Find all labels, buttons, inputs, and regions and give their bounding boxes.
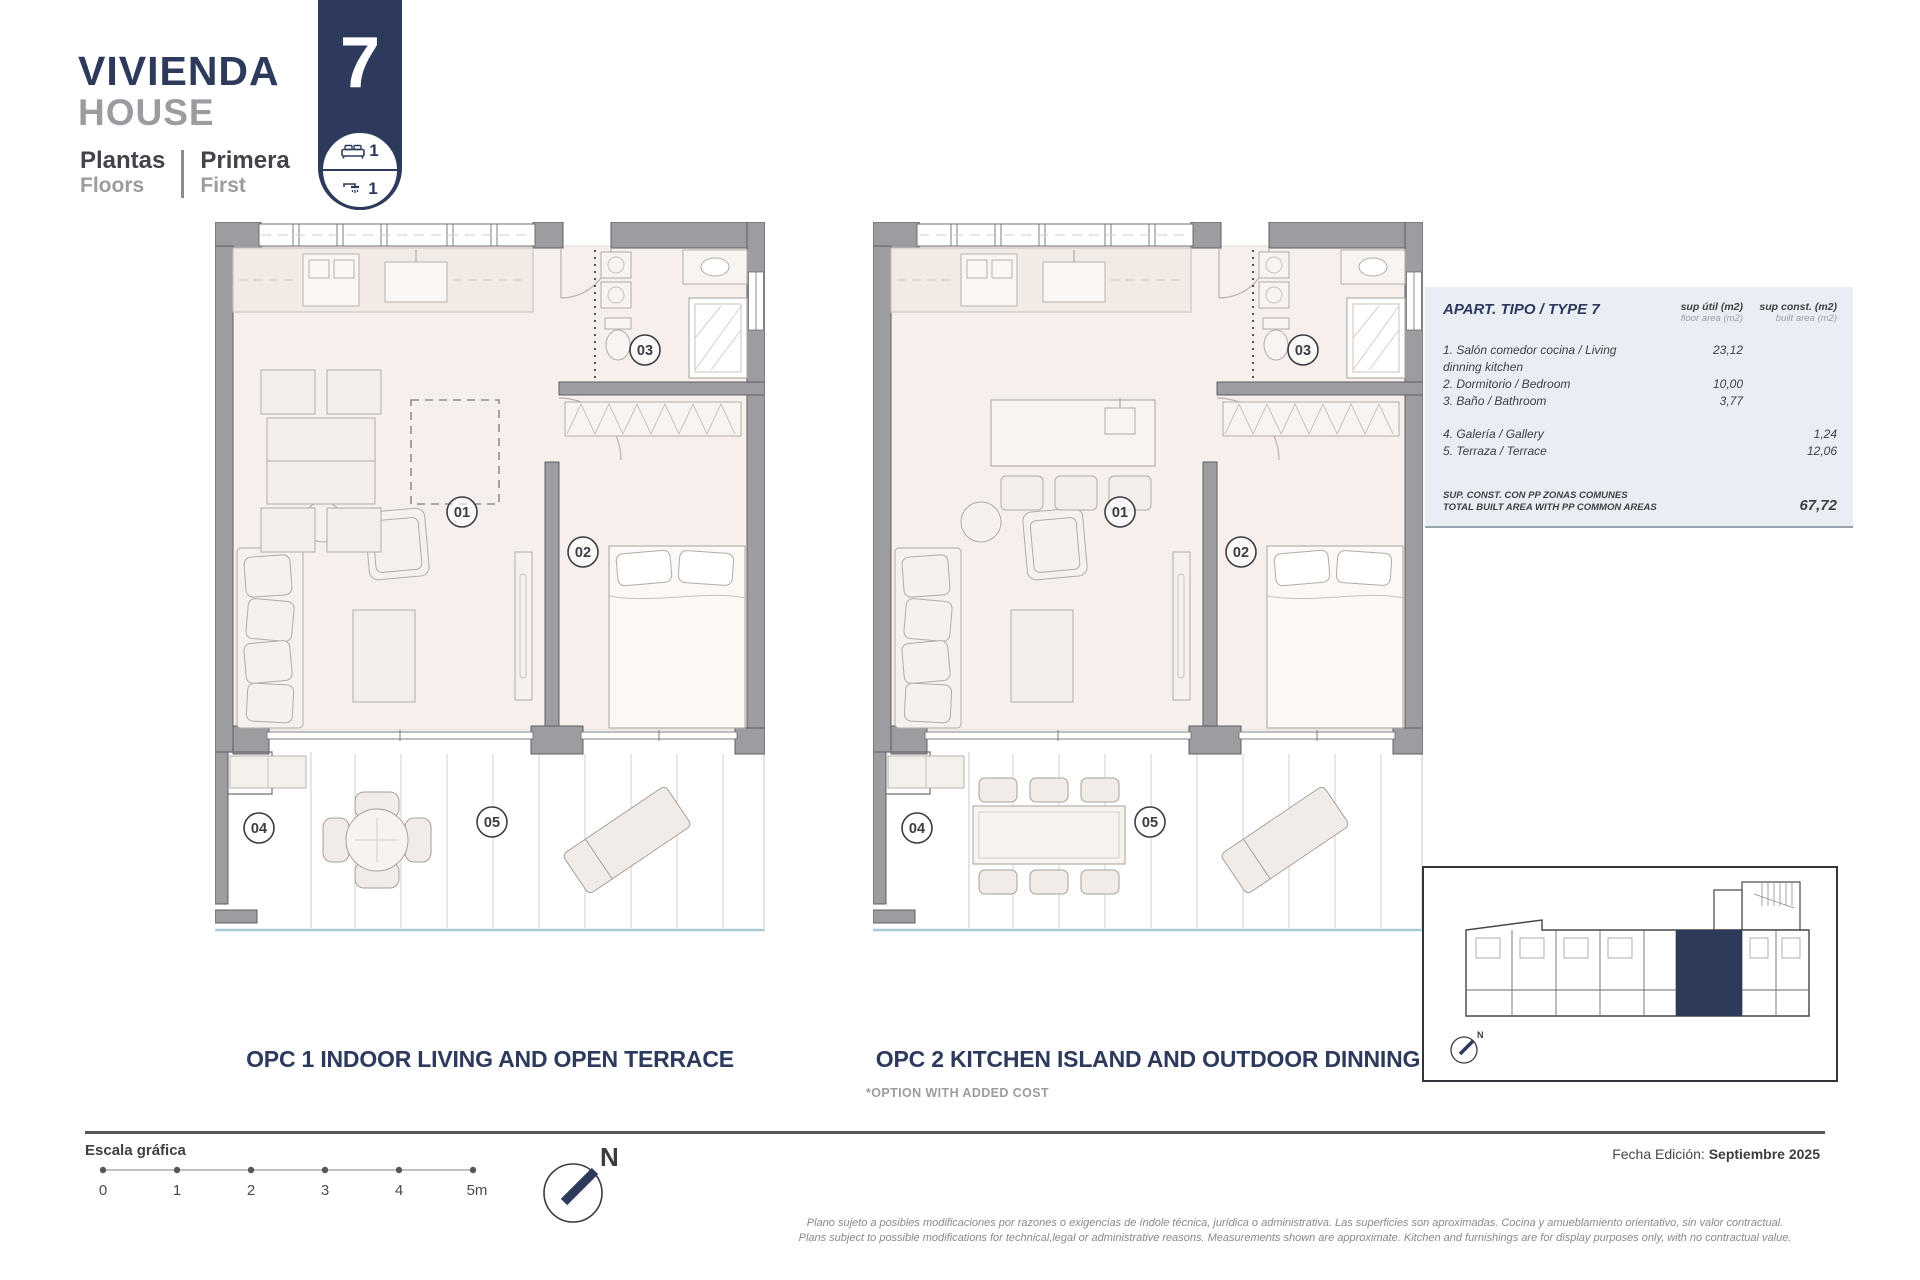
sun-lounger — [1220, 785, 1350, 894]
opc2-note: *OPTION WITH ADDED COST — [866, 1086, 1049, 1100]
svg-text:04: 04 — [251, 821, 267, 837]
bedrooms-row: 1 — [323, 133, 397, 171]
floor-plan-opc1: 01 02 03 04 05 — [215, 222, 765, 934]
svg-text:05: 05 — [1142, 815, 1158, 831]
scale-ticks: 0 1 2 3 4 5m — [85, 1182, 491, 1202]
svg-text:01: 01 — [1112, 505, 1128, 521]
table-row: 4. Galería / Gallery 1,24 — [1443, 426, 1837, 443]
table-row: 5. Terraza / Terrace 12,06 — [1443, 443, 1837, 460]
scale-label: Escala gráfica — [85, 1142, 186, 1159]
room-label-gallery: 04 — [244, 813, 274, 843]
key-plan-drawing: N — [1424, 868, 1836, 1080]
svg-text:N: N — [1477, 1030, 1484, 1040]
unit-amenities: 1 1 — [320, 130, 400, 210]
room-label-living: 01 — [447, 497, 477, 527]
area-table: APART. TIPO / TYPE 7 sup útil (m2) floor… — [1425, 287, 1853, 528]
room-label-gallery: 04 — [902, 813, 932, 843]
table-row: 2. Dormitorio / Bedroom 10,00 — [1443, 376, 1837, 393]
edition-date: Fecha Edición: Septiembre 2025 — [1400, 1146, 1820, 1162]
bed-icon — [341, 144, 365, 159]
shower-icon — [342, 181, 364, 197]
unit-number: 7 — [318, 22, 402, 104]
table-row: 1. Salón comedor cocina / Living dinning… — [1443, 342, 1837, 376]
svg-text:03: 03 — [1295, 343, 1311, 359]
floor-info: Plantas Floors Primera First — [80, 148, 290, 198]
bathrooms-count: 1 — [368, 179, 377, 199]
room-label-bedroom: 02 — [568, 537, 598, 567]
col-built-area: sup const. (m2) built area (m2) — [1743, 301, 1837, 324]
page-title-es: VIVIENDA — [78, 48, 280, 95]
floors-label-es: Plantas — [80, 148, 165, 174]
north-label: N — [600, 1142, 619, 1172]
svg-text:04: 04 — [909, 821, 925, 837]
svg-text:05: 05 — [484, 815, 500, 831]
bathrooms-row: 1 — [323, 171, 397, 207]
col-floor-area: sup útil (m2) floor area (m2) — [1649, 301, 1743, 324]
legal-disclaimer: Plano sujeto a posibles modificaciones p… — [700, 1216, 1890, 1245]
scale-bar — [85, 1162, 491, 1178]
svg-text:03: 03 — [637, 343, 653, 359]
total-built-area-value: 67,72 — [1743, 497, 1837, 514]
room-label-living: 01 — [1105, 497, 1135, 527]
footer-divider — [85, 1131, 1825, 1134]
page-title-en: HOUSE — [78, 92, 215, 134]
room-label-bedroom: 02 — [1226, 537, 1256, 567]
floor-value-es: Primera — [200, 148, 289, 174]
key-plan-box: N — [1422, 866, 1838, 1082]
floors-label-en: Floors — [80, 174, 165, 198]
sun-lounger — [562, 785, 692, 894]
area-table-title: APART. TIPO / TYPE 7 — [1443, 301, 1649, 318]
terrace-table-round — [323, 792, 431, 888]
highlighted-unit — [1676, 930, 1742, 1016]
svg-text:02: 02 — [1233, 545, 1249, 561]
floor-plan-opc2: 01 02 03 04 05 — [873, 222, 1423, 934]
opc1-title: OPC 1 INDOOR LIVING AND OPEN TERRACE — [195, 1046, 785, 1073]
room-label-terrace: 05 — [1135, 807, 1165, 837]
unit-badge: 7 1 1 — [318, 0, 402, 210]
floor-value-en: First — [200, 174, 289, 198]
floor-divider — [181, 150, 184, 198]
terrace-table-rect — [973, 778, 1125, 894]
opc2-title: OPC 2 KITCHEN ISLAND AND OUTDOOR DINNING — [848, 1046, 1448, 1073]
kitchen-island — [991, 398, 1155, 510]
room-label-bathroom: 03 — [630, 335, 660, 365]
north-compass: N — [528, 1138, 648, 1238]
table-total-row: SUP. CONST. CON PP ZONAS COMUNES TOTAL B… — [1443, 490, 1837, 514]
table-row: 3. Baño / Bathroom 3,77 — [1443, 393, 1837, 410]
key-plan-compass: N — [1451, 1030, 1484, 1063]
room-label-terrace: 05 — [477, 807, 507, 837]
room-label-bathroom: 03 — [1288, 335, 1318, 365]
svg-text:02: 02 — [575, 545, 591, 561]
svg-text:01: 01 — [454, 505, 470, 521]
bedrooms-count: 1 — [369, 141, 378, 161]
